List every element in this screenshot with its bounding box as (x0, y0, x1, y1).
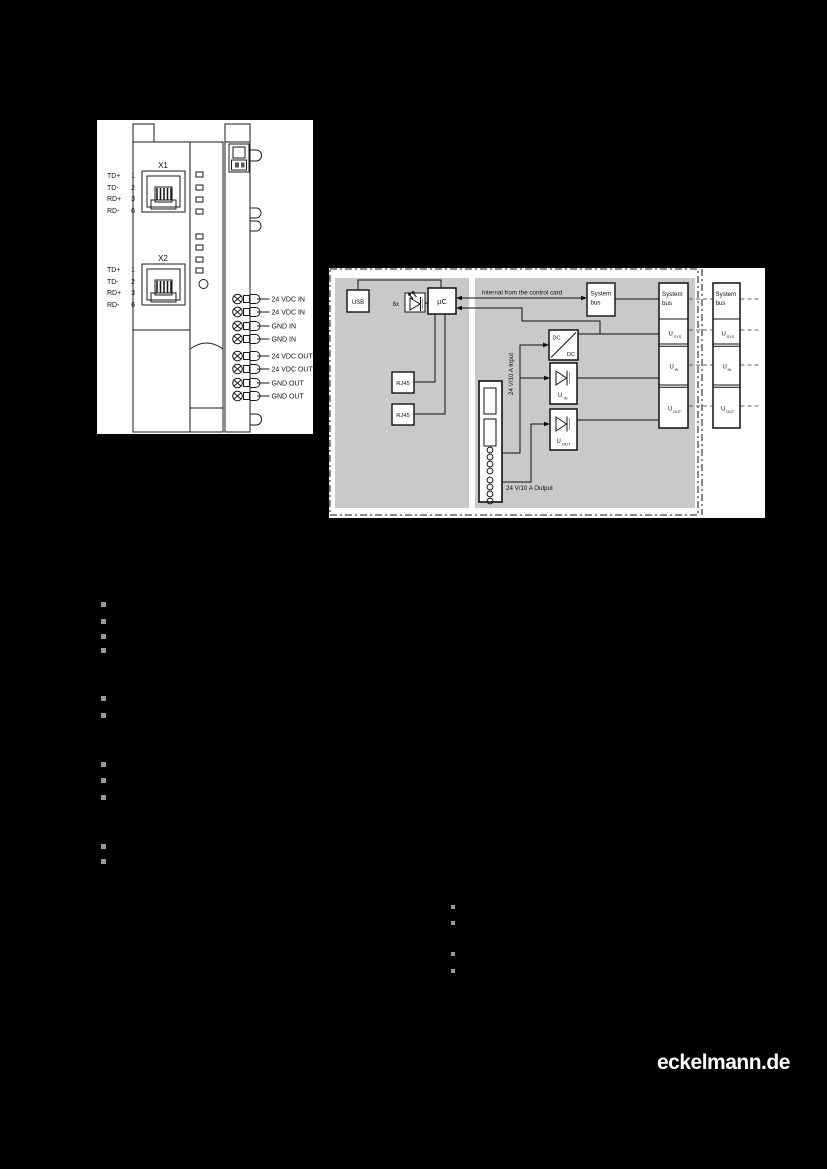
terminal-label: GND IN (272, 324, 297, 331)
bullet-marker (101, 619, 106, 624)
bullet-marker (451, 905, 455, 909)
brand-link[interactable]: eckelmann.de (657, 1051, 779, 1075)
bullet-marker (451, 952, 455, 956)
output-rating-label: 24 V/10 A Output (506, 485, 553, 492)
stack-uout-sub: OUT (726, 410, 735, 414)
led-icon (405, 292, 425, 313)
input-sense-block: U IN (550, 363, 577, 404)
bullet-marker (101, 778, 106, 783)
pin-number: 1 (131, 267, 135, 274)
input-rating-label: 24 V/10 A Input (508, 353, 515, 395)
pin-number: 2 (131, 185, 135, 192)
pin-signal: TD- (107, 279, 119, 286)
pin-signal: TD+ (107, 267, 120, 274)
rj45-top-label: RJ45 (396, 381, 410, 387)
terminal-label: GND OUT (272, 381, 305, 388)
stack-bus-line2: bus (716, 300, 726, 307)
pin-signal: TD+ (107, 173, 120, 180)
inner-bus-stack: System bus U SYS U IN U OUT (659, 283, 688, 428)
sense-in-sub: IN (564, 396, 568, 401)
bullet-marker (101, 634, 106, 639)
supply-terminal-connector (479, 381, 502, 504)
document-page: { "page": { "brand_link": "eckelmann.de"… (0, 0, 827, 1169)
system-bus-line1: System (591, 291, 612, 298)
terminal-label: GND IN (272, 337, 297, 344)
pin-signal: RD- (107, 302, 120, 309)
bullet-marker (451, 921, 455, 925)
stack-uin-base: U (670, 365, 674, 371)
terminal-label: GND OUT (272, 394, 305, 401)
sense-out-base: U (557, 439, 561, 445)
bullet-marker (101, 602, 106, 607)
output-sense-block: U OUT (550, 409, 577, 450)
bullet-marker (451, 969, 455, 973)
connector-x2-label: X2 (158, 254, 168, 263)
mcu-label: µC (437, 297, 447, 306)
pin-number: 3 (131, 196, 135, 203)
bullet-marker (101, 696, 106, 701)
pin-signal: RD+ (107, 196, 121, 203)
usb-label: USB (352, 300, 364, 306)
stack-uout-base: U (721, 407, 725, 413)
stack-uout-base: U (668, 407, 672, 413)
system-bus-line2: bus (591, 300, 601, 307)
pin-number: 3 (131, 290, 135, 297)
sense-out-sub: OUT (562, 442, 571, 447)
connector-x1-label: X1 (158, 161, 168, 170)
stack-usys-base: U (722, 332, 726, 338)
stack-usys-sub: SYS (674, 335, 682, 339)
bullet-marker (101, 795, 106, 800)
led-count-label: 8x (393, 302, 399, 308)
bullet-marker (101, 648, 106, 653)
pin-number: 2 (131, 279, 135, 286)
block-diagram-figure: USB 8x µC RJ45 RJ45 Internal from the co… (329, 268, 765, 518)
internal-note: Internal from the control card (482, 290, 563, 297)
pin-number: 6 (131, 208, 135, 215)
bullet-marker (101, 859, 106, 864)
terminal-label: 24 VDC IN (272, 297, 305, 304)
bullet-marker (101, 762, 106, 767)
stack-usys-base: U (669, 332, 673, 338)
stack-usys-sub: SYS (727, 335, 735, 339)
terminal-label: 24 VDC IN (272, 310, 305, 317)
stack-uin-base: U (723, 365, 727, 371)
sense-in-base: U (558, 393, 562, 399)
bullet-marker (101, 844, 106, 849)
terminal-label: 24 VDC OUT (272, 354, 314, 361)
stack-bus-line1: System (716, 291, 737, 298)
dcdc-bottom-label: DC (567, 352, 575, 358)
stack-uin-sub: IN (728, 368, 732, 372)
dcdc-top-label: DC (553, 336, 561, 342)
pin-signal: TD- (107, 185, 119, 192)
stack-bus-line1: System (662, 291, 683, 298)
rj45-bottom-label: RJ45 (396, 413, 410, 419)
stack-bus-line2: bus (662, 300, 672, 307)
pin-number: 1 (131, 173, 135, 180)
dcdc-converter-block: DC DC (549, 330, 578, 360)
module-front-view-figure: X1 X2 TD+ 1 TD- 2 RD+ 3 RD- 6 TD+ 1 TD- … (97, 120, 313, 434)
stack-uin-sub: IN (675, 368, 679, 372)
terminal-label: 24 VDC OUT (272, 367, 314, 374)
pin-signal: RD- (107, 208, 120, 215)
bullet-marker (101, 713, 106, 718)
outer-bus-stack: System bus U SYS U IN U OUT (713, 283, 740, 428)
pin-number: 6 (131, 302, 135, 309)
stack-uout-sub: OUT (673, 410, 682, 414)
pin-signal: RD+ (107, 290, 121, 297)
